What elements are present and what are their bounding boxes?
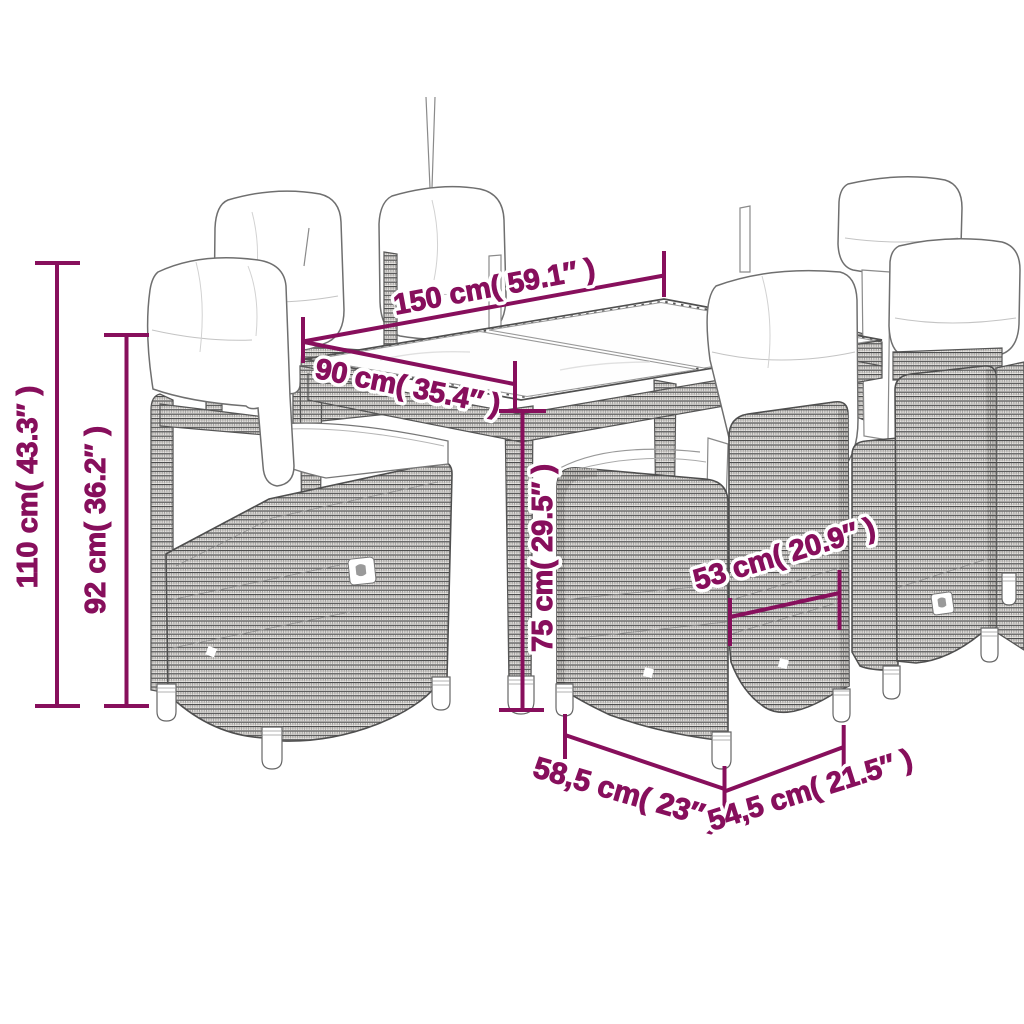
svg-text:58,5 cm( 23″ ): 58,5 cm( 23″ )	[530, 751, 726, 836]
svg-text:92 cm( 36.2″ ): 92 cm( 36.2″ )	[80, 426, 112, 614]
svg-text:75 cm( 29.5″ ): 75 cm( 29.5″ )	[527, 464, 559, 652]
svg-text:110 cm( 43.3″ ): 110 cm( 43.3″ )	[12, 386, 44, 589]
